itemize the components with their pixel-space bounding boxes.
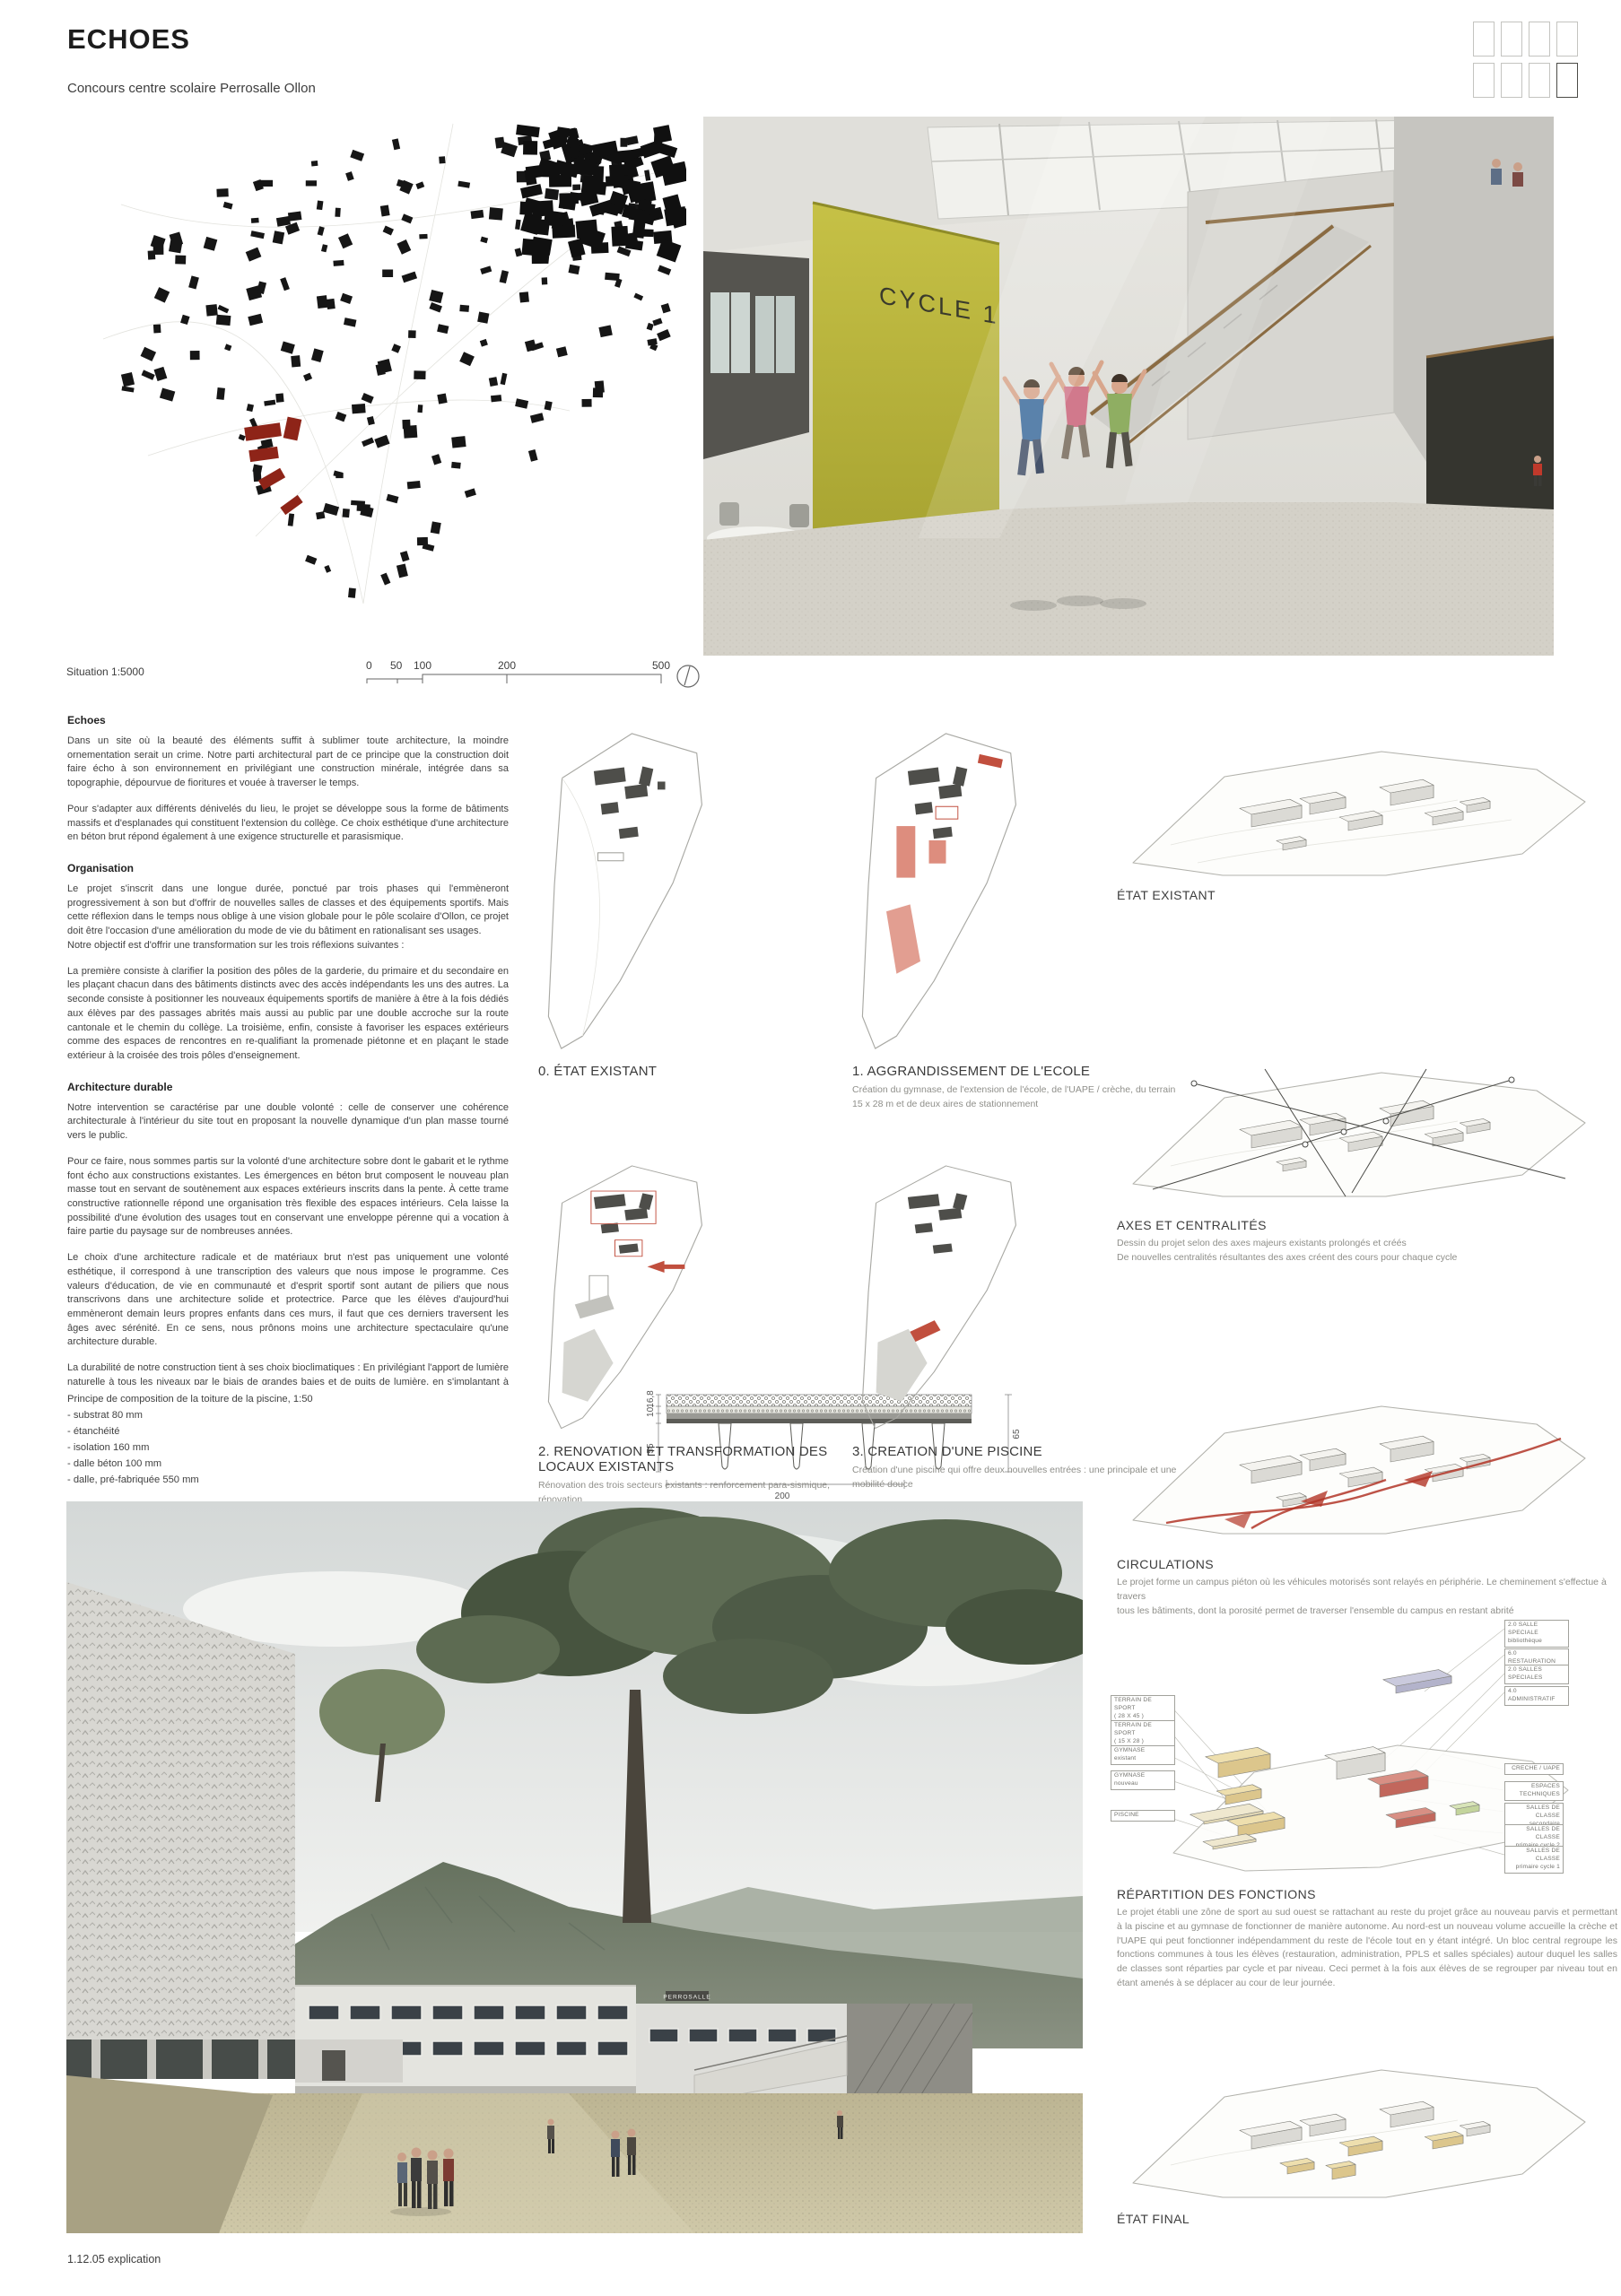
function-label: GYMNASEnouveau xyxy=(1111,1770,1175,1790)
right-section-desc: Dessin du projet selon des axes majeurs … xyxy=(1117,1237,1619,1265)
panel-square xyxy=(1556,22,1578,57)
project-description: Echoes Dans un site où la beauté des élé… xyxy=(67,714,509,1385)
roof-layer: - dalle, pré-fabriquée 550 mm xyxy=(67,1473,372,1489)
site-plan-map xyxy=(67,115,686,653)
scale-tick: 100 xyxy=(414,659,431,672)
right-section-circulations: CIRCULATIONS Le projet forme un campus p… xyxy=(1117,1557,1619,1618)
siteplan-caption: Situation 1:5000 xyxy=(66,665,144,678)
function-label: TERRAIN DE SPORT( 15 X 28 ) xyxy=(1111,1720,1175,1748)
function-label: GYMNASEexistant xyxy=(1111,1745,1175,1765)
panel-square xyxy=(1473,22,1495,57)
building-sign: PERROSALLE xyxy=(663,1995,710,2001)
page-title: ECHOES xyxy=(67,23,190,56)
scale-tick: 50 xyxy=(390,659,403,672)
function-label: SALLES DE CLASSEprimaire cycle 1 xyxy=(1504,1846,1564,1874)
function-label: CRECHE / UAPE xyxy=(1504,1763,1564,1775)
axon-axes-centralites xyxy=(1117,1058,1606,1202)
section-heading: Architecture durable xyxy=(67,1081,509,1093)
roof-layer: - isolation 160 mm xyxy=(67,1440,372,1457)
scale-tick: 0 xyxy=(366,659,372,672)
right-section-label: ÉTAT EXISTANT xyxy=(1117,888,1216,902)
function-label: TERRAIN DE SPORT( 28 X 45 ) xyxy=(1111,1695,1175,1723)
roof-layer: - dalle béton 100 mm xyxy=(67,1457,372,1473)
panel-square xyxy=(1473,63,1495,98)
right-section-repartition: RÉPARTITION DES FONCTIONS Le projet étab… xyxy=(1117,1887,1617,1991)
scale-tick: 500 xyxy=(652,659,670,672)
function-label: 2.0 SALLESSPECIALES xyxy=(1504,1665,1569,1684)
right-section-label: AXES ET CENTRALITÉS xyxy=(1117,1218,1619,1232)
building-fabric xyxy=(121,125,686,598)
panel-square-current xyxy=(1556,63,1578,98)
function-label: 2.0 SALLE SPECIALEbibliothèque xyxy=(1504,1620,1569,1648)
paragraph: La première consiste à clarifier la posi… xyxy=(67,965,509,1064)
project-buildings-red xyxy=(244,417,302,515)
section-heading: Echoes xyxy=(67,714,509,726)
paragraph: La durabilité de notre construction tien… xyxy=(67,1361,509,1385)
north-arrow-icon xyxy=(677,665,699,687)
axon-circulations xyxy=(1117,1381,1606,1541)
exterior-render: PERROSALLE xyxy=(66,1501,1083,2233)
right-section-label: RÉPARTITION DES FONCTIONS xyxy=(1117,1887,1617,1901)
panel-square xyxy=(1529,63,1550,98)
right-section-label: ÉTAT FINAL xyxy=(1117,2212,1190,2226)
panel-reference: 1.12.05 explication xyxy=(67,2253,161,2266)
phase-diagram-3 xyxy=(852,1157,1023,1435)
scale-tick: 200 xyxy=(498,659,516,672)
phase-caption-0: 0. ÉTAT EXISTANT xyxy=(538,1064,834,1079)
interior-render: CYCLE 1 xyxy=(703,117,1554,656)
paragraph: Dans un site où la beauté des éléments s… xyxy=(67,735,509,791)
roof-layer: - étanchéité xyxy=(67,1424,372,1440)
competition-board: ECHOES Concours centre scolaire Perrosal… xyxy=(0,0,1621,2296)
roof-principle: Principe de composition de la toiture de… xyxy=(67,1392,372,1489)
paragraph: Pour ce faire, nous sommes partis sur la… xyxy=(67,1155,509,1239)
phase-diagram-2 xyxy=(538,1157,709,1435)
function-label: PISCINE xyxy=(1111,1810,1175,1822)
paragraph: Le choix d'une architecture radicale et … xyxy=(67,1251,509,1350)
axon-etat-existant xyxy=(1117,737,1606,879)
paragraph: Le projet s'inscrit dans une longue duré… xyxy=(67,883,509,953)
right-section-desc: Le projet établi une zône de sport au su… xyxy=(1117,1906,1617,1991)
right-section-label: CIRCULATIONS xyxy=(1117,1557,1619,1571)
axon-etat-final xyxy=(1117,2047,1606,2204)
page-subtitle: Concours centre scolaire Perrosalle Ollo… xyxy=(67,81,316,96)
right-section-axes: AXES ET CENTRALITÉS Dessin du projet sel… xyxy=(1117,1218,1619,1265)
panel-square xyxy=(1501,63,1522,98)
phase-diagram-0 xyxy=(538,723,709,1057)
scale-bar: 0 50 100 200 500 xyxy=(363,657,713,694)
paragraph: Pour s'adapter aux différents dénivelés … xyxy=(67,803,509,845)
roof-layer: - substrat 80 mm xyxy=(67,1408,372,1424)
phase-diagram-1 xyxy=(852,723,1023,1057)
panel-locator xyxy=(1473,22,1590,98)
roof-title: Principe de composition de la toiture de… xyxy=(67,1392,372,1408)
section-heading: Organisation xyxy=(67,862,509,874)
phase-title: 0. ÉTAT EXISTANT xyxy=(538,1064,834,1079)
panel-square xyxy=(1529,22,1550,57)
function-label: ESPACESTECHNIQUES xyxy=(1504,1781,1564,1801)
phase-title: 2. RENOVATION ET TRANSFORMATION DES LOCA… xyxy=(538,1444,861,1474)
function-label: 4.0 ADMINISTRATIF xyxy=(1504,1686,1569,1706)
panel-square xyxy=(1501,22,1522,57)
paragraph: Notre intervention se caractérise par un… xyxy=(67,1101,509,1144)
